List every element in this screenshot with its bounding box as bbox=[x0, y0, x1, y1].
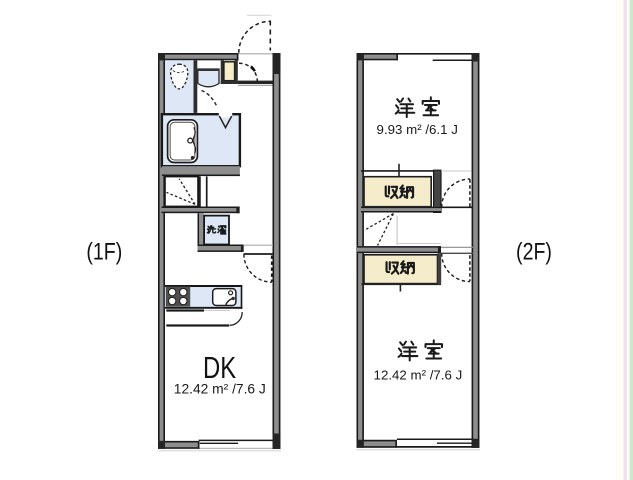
svg-text:9.93 m² /6.1 J: 9.93 m² /6.1 J bbox=[377, 122, 458, 137]
svg-text:(1F): (1F) bbox=[86, 237, 122, 265]
svg-text:DK: DK bbox=[203, 350, 237, 385]
svg-text:12.42 m² /7.6 J: 12.42 m² /7.6 J bbox=[374, 367, 463, 382]
svg-text:(2F): (2F) bbox=[516, 237, 552, 265]
svg-text:12.42 m² /7.6 J: 12.42 m² /7.6 J bbox=[174, 382, 266, 397]
